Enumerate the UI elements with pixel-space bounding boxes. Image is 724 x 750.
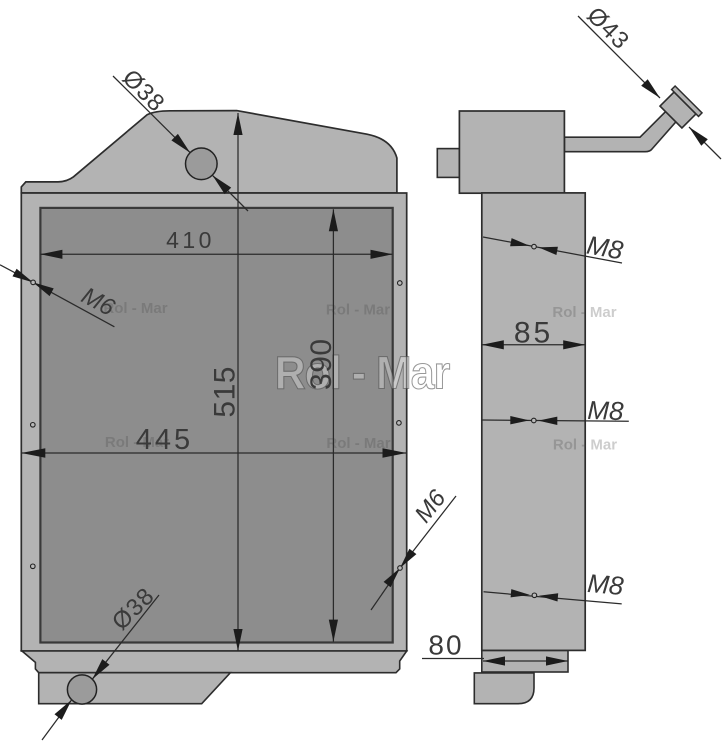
- svg-text:80: 80: [428, 630, 463, 661]
- svg-text:410: 410: [166, 227, 215, 253]
- svg-text:M8: M8: [585, 230, 626, 266]
- svg-text:Ø38: Ø38: [117, 64, 170, 117]
- svg-text:390: 390: [305, 338, 338, 390]
- svg-text:Rol - Mar: Rol - Mar: [326, 302, 390, 319]
- svg-text:Rol - Mar: Rol - Mar: [553, 437, 617, 454]
- svg-text:M6: M6: [410, 485, 452, 528]
- svg-text:515: 515: [208, 366, 241, 418]
- svg-text:Rol - Mar: Rol - Mar: [275, 348, 450, 399]
- svg-text:M8: M8: [587, 395, 625, 426]
- svg-text:M8: M8: [586, 568, 625, 601]
- svg-text:Rol - Mar: Rol - Mar: [552, 304, 616, 321]
- svg-text:445: 445: [136, 424, 193, 456]
- svg-text:Rol - Mar: Rol - Mar: [326, 435, 390, 452]
- svg-text:85: 85: [514, 317, 553, 350]
- svg-text:Ø43: Ø43: [581, 2, 634, 55]
